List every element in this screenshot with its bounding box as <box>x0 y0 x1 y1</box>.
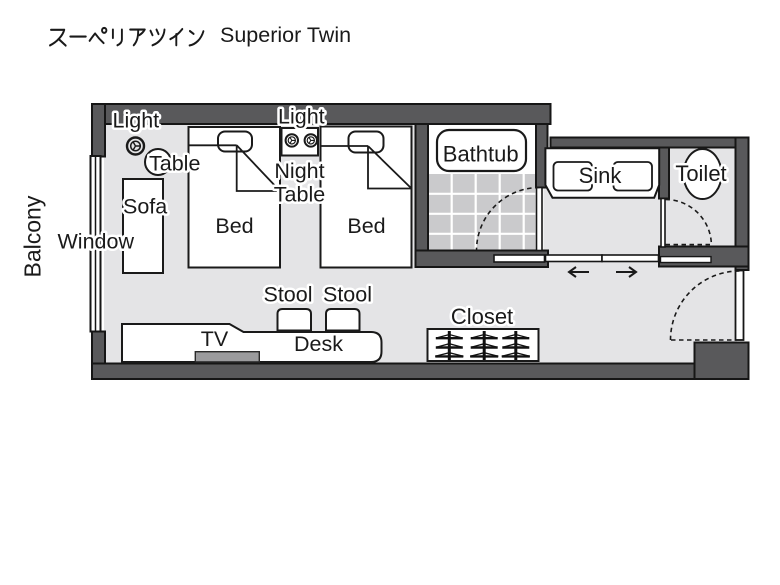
svg-text:Bed: Bed <box>347 214 385 238</box>
svg-text:Light: Light <box>113 108 160 132</box>
svg-text:Closet: Closet <box>451 304 513 329</box>
svg-text:Balcony: Balcony <box>20 195 46 277</box>
svg-text:Light: Light <box>278 105 325 129</box>
svg-text:TV: TV <box>201 327 229 351</box>
svg-text:Sofa: Sofa <box>123 195 167 219</box>
svg-text:Table: Table <box>149 152 200 176</box>
svg-text:Desk: Desk <box>294 332 343 356</box>
svg-text:Bathtub: Bathtub <box>443 141 519 166</box>
svg-text:Bed: Bed <box>215 214 253 238</box>
svg-text:Stool: Stool <box>323 282 372 306</box>
svg-text:Toilet: Toilet <box>675 161 726 186</box>
svg-text:Window: Window <box>58 230 135 254</box>
svg-text:Stool: Stool <box>263 282 312 306</box>
svg-text:Night: Night <box>274 159 324 183</box>
svg-text:Sink: Sink <box>579 163 623 188</box>
svg-text:Superior Twin: Superior Twin <box>220 23 351 47</box>
svg-text:Table: Table <box>274 183 325 207</box>
